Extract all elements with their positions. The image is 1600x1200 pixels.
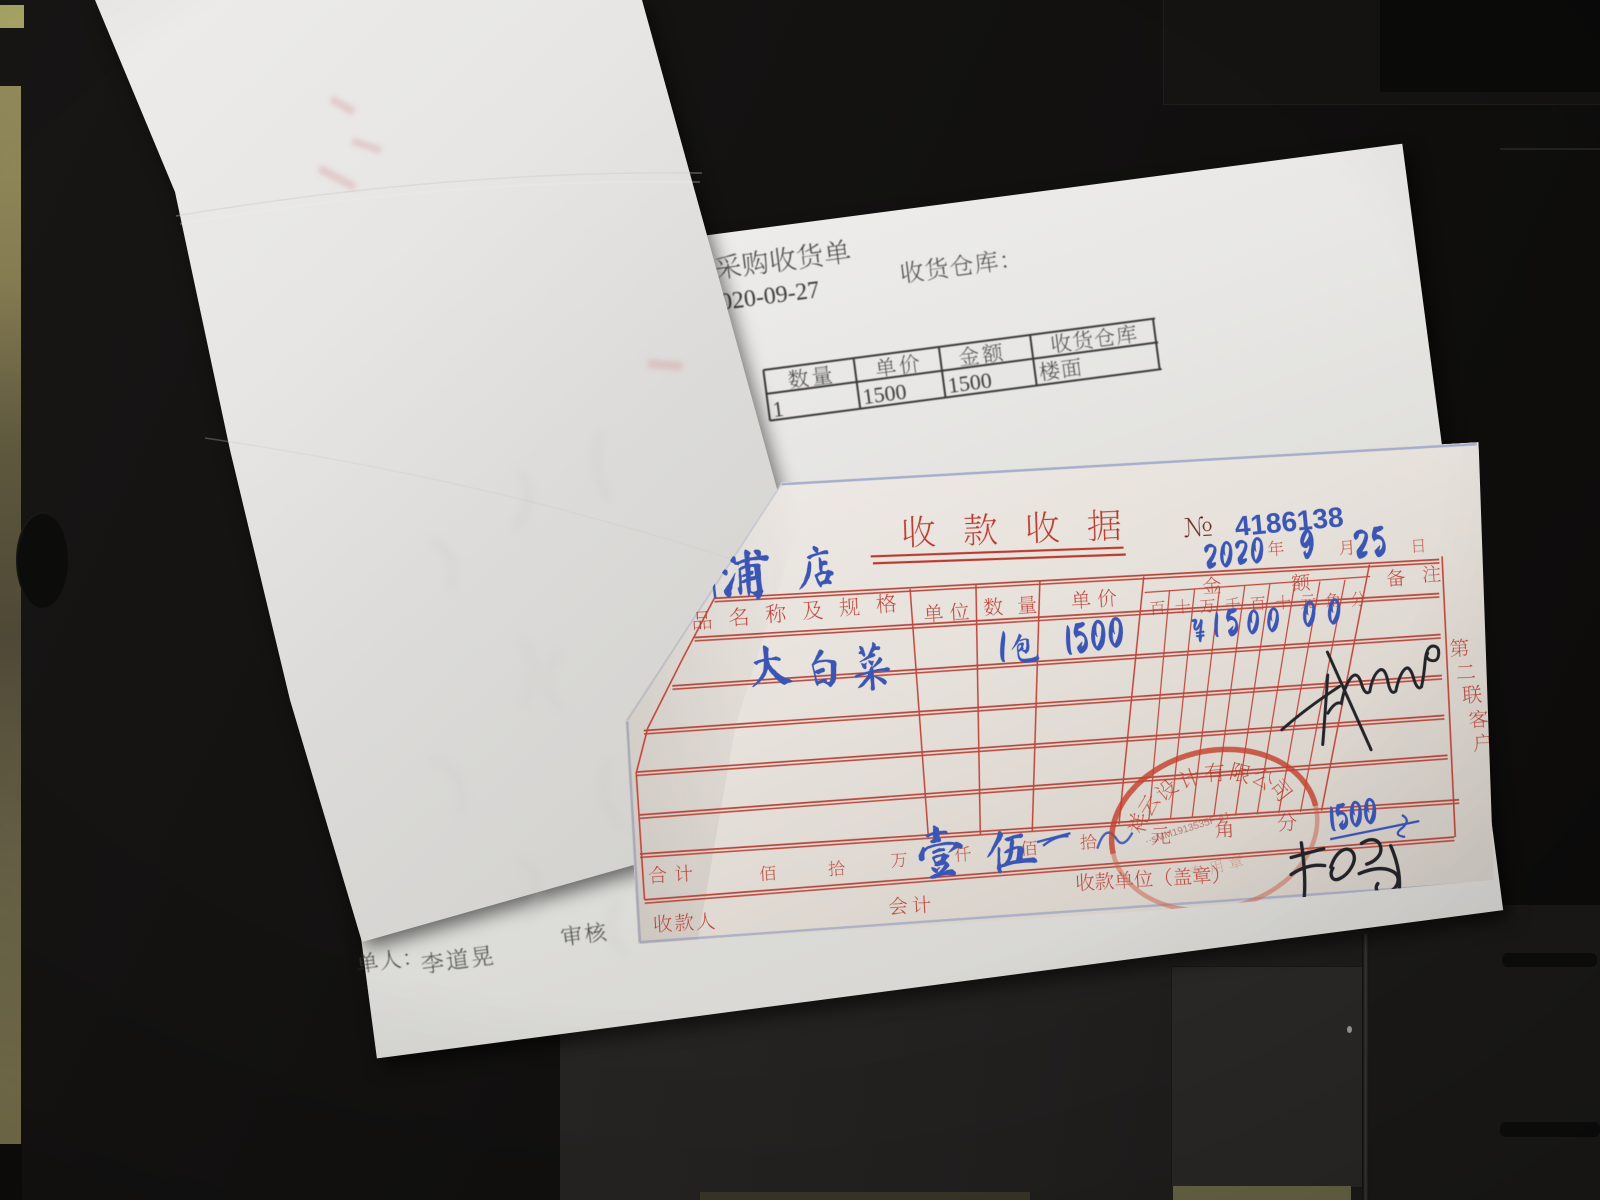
svg-text:··sMM1913535F·4J: ··sMM1913535F·4J (1144, 811, 1231, 847)
svg-text:1500: 1500 (946, 367, 993, 398)
svg-text:4186138: 4186138 (1233, 501, 1344, 542)
